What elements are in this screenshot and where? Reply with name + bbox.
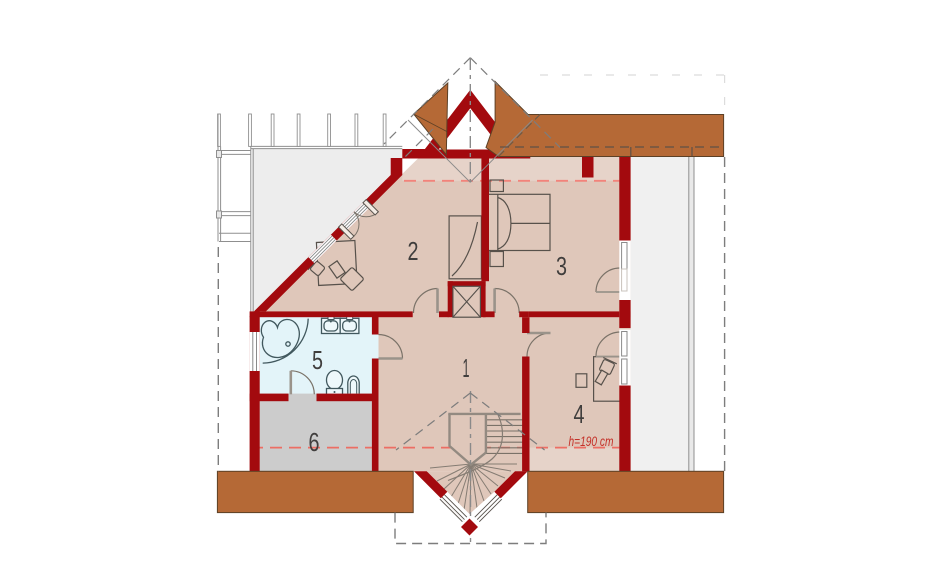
svg-text:4: 4	[574, 399, 585, 429]
svg-text:1: 1	[463, 353, 470, 383]
svg-text:6: 6	[309, 427, 320, 457]
svg-text:3: 3	[556, 251, 567, 281]
svg-text:h=190 cm: h=190 cm	[569, 433, 614, 449]
svg-text:5: 5	[312, 345, 323, 375]
svg-text:2: 2	[408, 236, 419, 266]
